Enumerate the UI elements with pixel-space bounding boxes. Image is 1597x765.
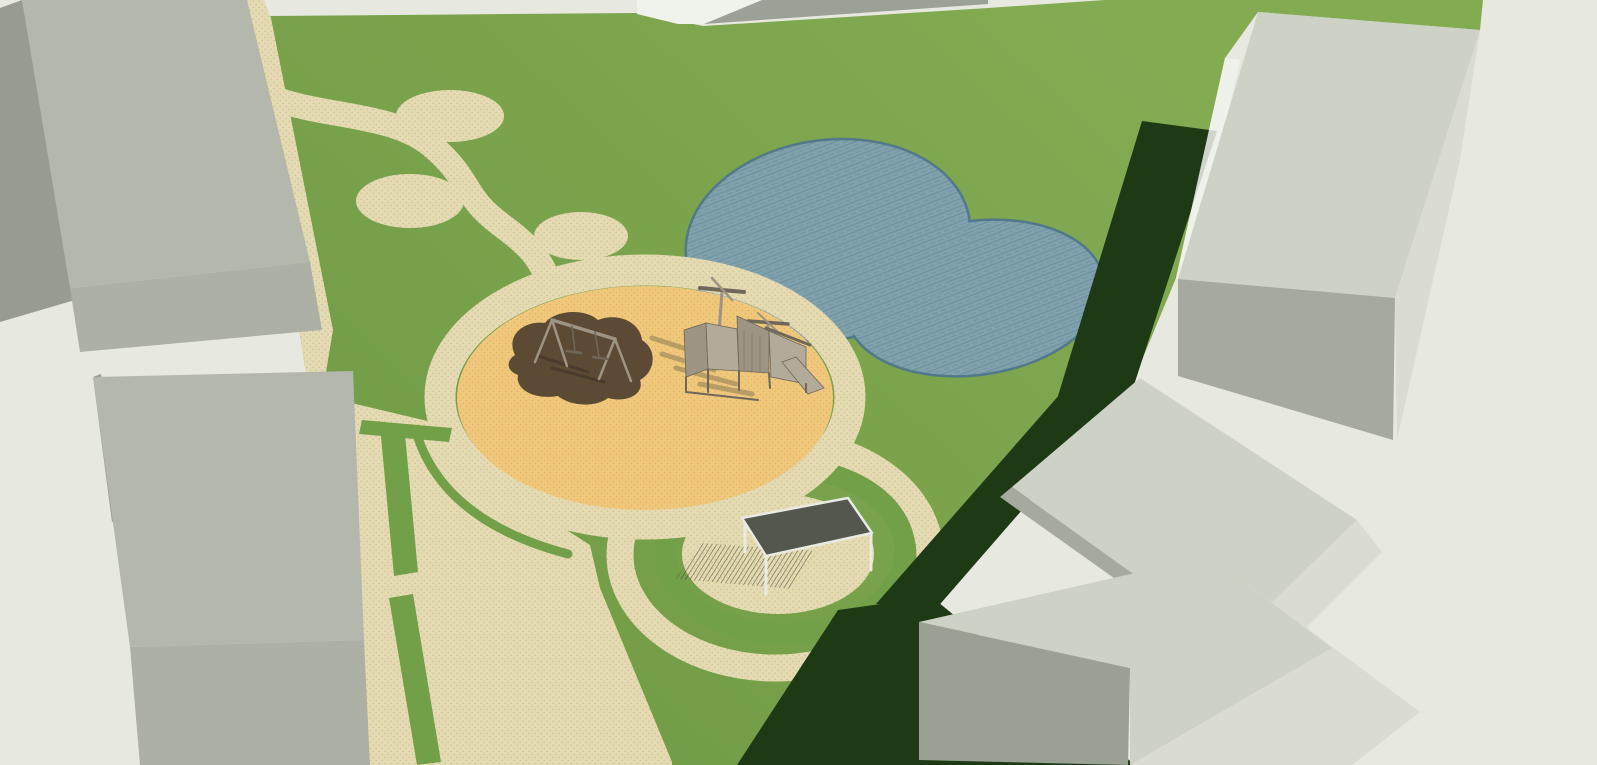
building-face-band	[130, 640, 370, 765]
render-canvas[interactable]	[0, 0, 1597, 765]
climber-panel-2	[706, 323, 739, 371]
building-face-top	[93, 371, 364, 647]
sand-area[interactable]	[457, 286, 833, 510]
climber-panel-1	[684, 323, 708, 377]
path-pad-2[interactable]	[356, 174, 464, 228]
path-pad-1[interactable]	[396, 90, 504, 142]
path-pad-3[interactable]	[534, 212, 628, 260]
mulch-patch[interactable]	[509, 312, 653, 405]
viewport-3d[interactable]	[0, 0, 1597, 765]
